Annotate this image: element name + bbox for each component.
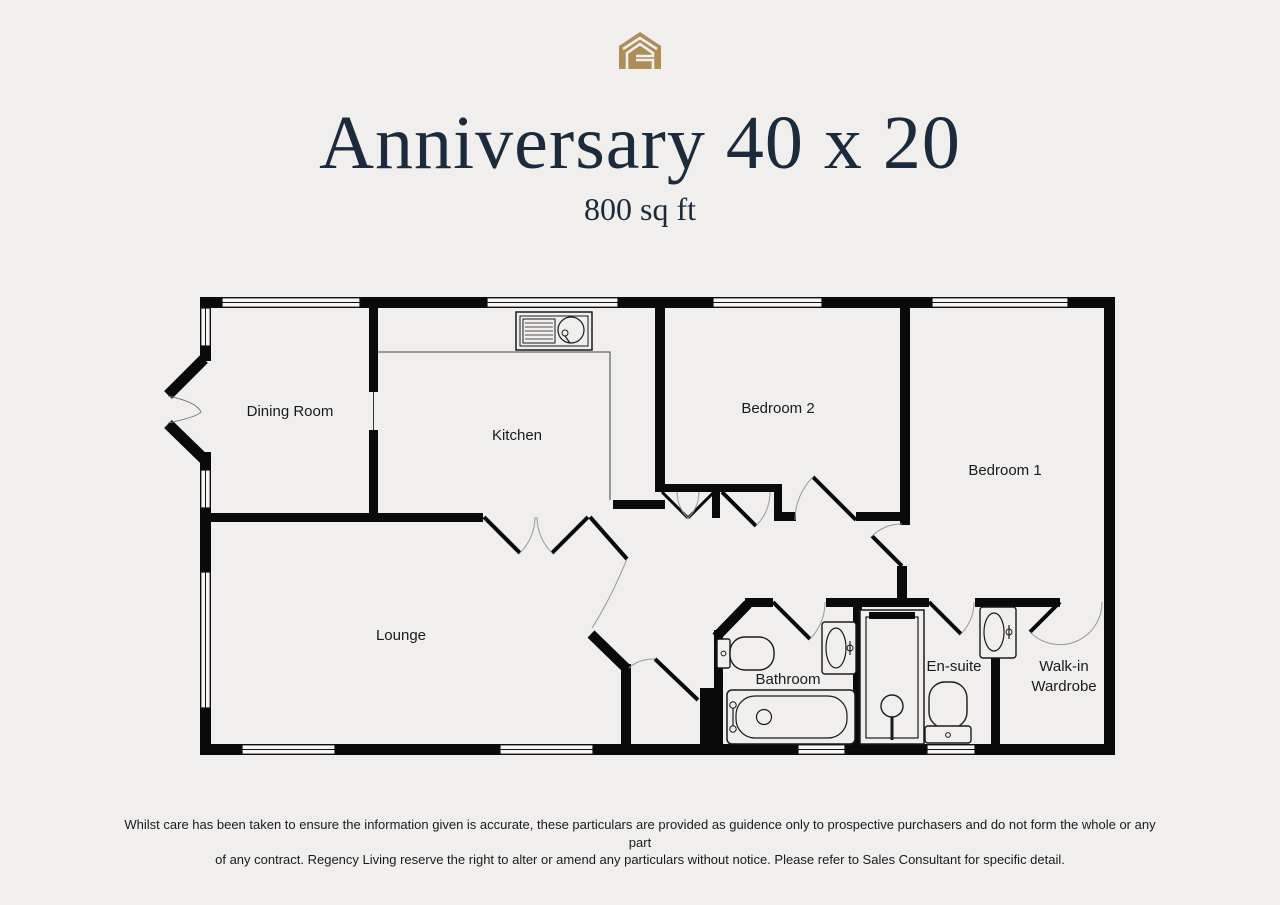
disclaimer-line1: Whilst care has been taken to ensure the… bbox=[120, 816, 1160, 851]
wall bbox=[200, 744, 1115, 755]
toilet-icon bbox=[925, 682, 971, 743]
door-leaf bbox=[722, 492, 756, 526]
wall bbox=[897, 566, 907, 602]
wall bbox=[369, 305, 378, 392]
wall bbox=[712, 492, 720, 518]
window-icon bbox=[242, 745, 335, 754]
door-arc bbox=[961, 602, 974, 634]
door-arc bbox=[168, 396, 201, 412]
window-icon bbox=[487, 298, 618, 307]
wall bbox=[900, 305, 910, 525]
window-icon bbox=[927, 745, 975, 754]
door-leaf bbox=[655, 659, 698, 700]
window-icon bbox=[798, 745, 845, 754]
room-label-lounge: Lounge bbox=[376, 627, 426, 644]
door-leaf bbox=[552, 517, 588, 553]
room-label-ensuite: En-suite bbox=[926, 658, 981, 675]
window-icon bbox=[222, 298, 360, 307]
wall bbox=[621, 664, 631, 755]
page: Anniversary 40 x 20 800 sq ft bbox=[0, 0, 1280, 905]
toilet-icon bbox=[717, 637, 774, 670]
window-icon bbox=[201, 308, 210, 346]
wall bbox=[856, 512, 905, 521]
door-leaf bbox=[929, 602, 961, 634]
door-arc bbox=[756, 492, 770, 526]
wall bbox=[655, 484, 782, 492]
room-label-bedroom1: Bedroom 1 bbox=[968, 462, 1041, 479]
fixtures bbox=[378, 312, 1016, 744]
wall bbox=[745, 598, 773, 607]
wall bbox=[369, 430, 378, 516]
wall bbox=[655, 305, 665, 488]
disclaimer: Whilst care has been taken to ensure the… bbox=[120, 816, 1160, 869]
door-leaf bbox=[813, 477, 856, 520]
wall bbox=[700, 688, 723, 755]
shower-icon bbox=[860, 610, 924, 744]
floorplan: Dining Room Kitchen Bedroom 2 Bedroom 1 … bbox=[0, 0, 1280, 905]
room-label-kitchen: Kitchen bbox=[492, 427, 542, 444]
door-arc bbox=[520, 517, 535, 553]
kitchen-sink-icon bbox=[516, 312, 592, 350]
doors bbox=[168, 396, 1102, 700]
kitchen-counter bbox=[378, 352, 610, 500]
room-label-bathroom: Bathroom bbox=[755, 671, 820, 688]
window-icon bbox=[500, 745, 593, 754]
door-arc bbox=[537, 517, 552, 553]
wall bbox=[774, 512, 796, 521]
window-icon bbox=[201, 470, 210, 508]
wall bbox=[975, 598, 1060, 607]
door-arc bbox=[592, 559, 627, 628]
basin-icon bbox=[822, 622, 856, 674]
room-label-wardrobe-line1: Walk-in bbox=[1039, 658, 1088, 675]
wall-diagonal bbox=[591, 634, 626, 668]
basin-icon bbox=[980, 607, 1016, 658]
door-arc bbox=[629, 659, 655, 668]
bay-wall bbox=[168, 359, 204, 395]
wall bbox=[613, 500, 665, 509]
door-leaf bbox=[773, 602, 810, 639]
wall bbox=[826, 598, 929, 607]
door-leaf bbox=[590, 517, 627, 559]
wall bbox=[1104, 297, 1115, 755]
room-label-dining: Dining Room bbox=[247, 403, 334, 420]
door-leaf bbox=[484, 517, 520, 553]
door-arc bbox=[872, 524, 902, 536]
room-label-bedroom2: Bedroom 2 bbox=[741, 400, 814, 417]
walls bbox=[168, 297, 1115, 755]
window-icon bbox=[932, 298, 1068, 307]
window-icon bbox=[201, 572, 210, 708]
wall bbox=[200, 513, 483, 522]
disclaimer-line2: of any contract. Regency Living reserve … bbox=[120, 851, 1160, 869]
bay-wall bbox=[168, 424, 204, 459]
window-icon bbox=[713, 298, 822, 307]
door-arc bbox=[795, 477, 813, 520]
bath-icon bbox=[727, 690, 855, 744]
room-label-wardrobe-line2: Wardrobe bbox=[1031, 678, 1096, 695]
door-leaf bbox=[872, 536, 902, 566]
